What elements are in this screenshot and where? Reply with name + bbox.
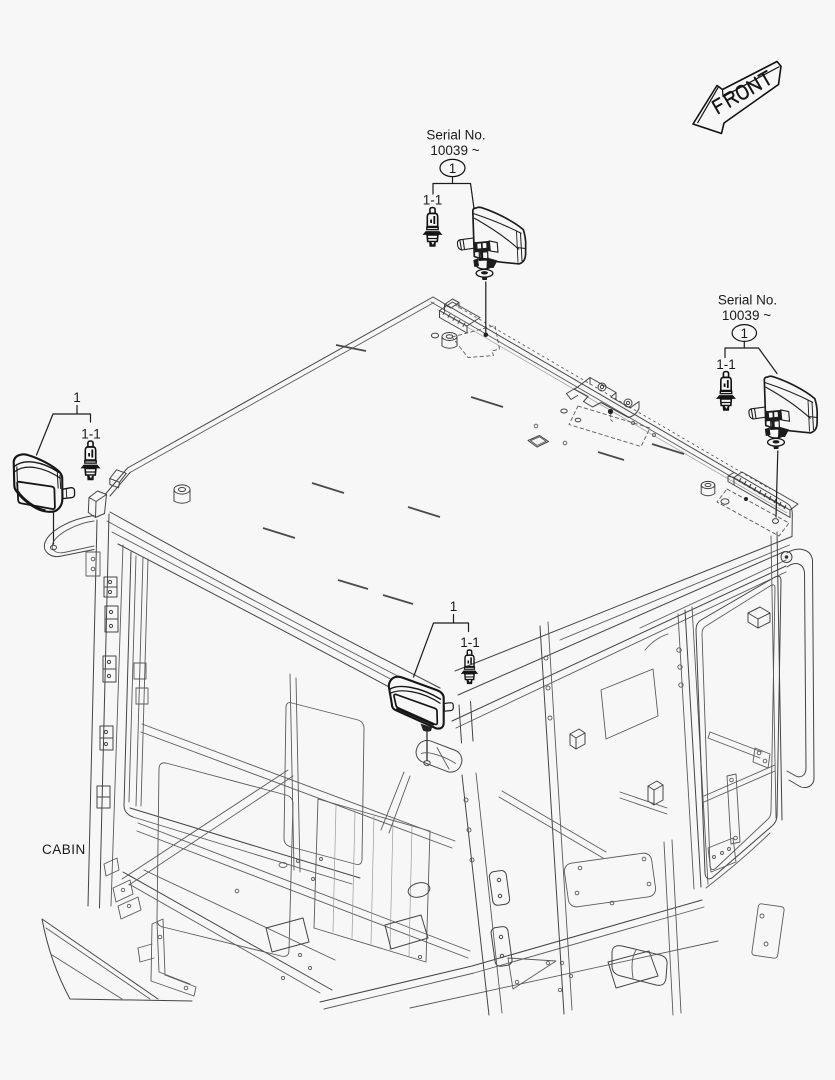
svg-text:1: 1 — [741, 326, 749, 341]
svg-text:1-1: 1-1 — [716, 357, 736, 372]
svg-text:1-1: 1-1 — [423, 193, 443, 208]
svg-text:Serial No.: Serial No. — [426, 128, 485, 143]
svg-text:10039 ~: 10039 ~ — [722, 308, 771, 323]
svg-text:1-1: 1-1 — [460, 635, 480, 650]
svg-text:10039 ~: 10039 ~ — [430, 143, 479, 158]
svg-text:CABIN: CABIN — [42, 842, 86, 857]
svg-text:1-1: 1-1 — [81, 427, 101, 442]
svg-text:Serial No.: Serial No. — [718, 293, 777, 308]
svg-text:1: 1 — [450, 599, 458, 614]
svg-text:1: 1 — [73, 390, 81, 405]
svg-text:1: 1 — [449, 161, 457, 176]
